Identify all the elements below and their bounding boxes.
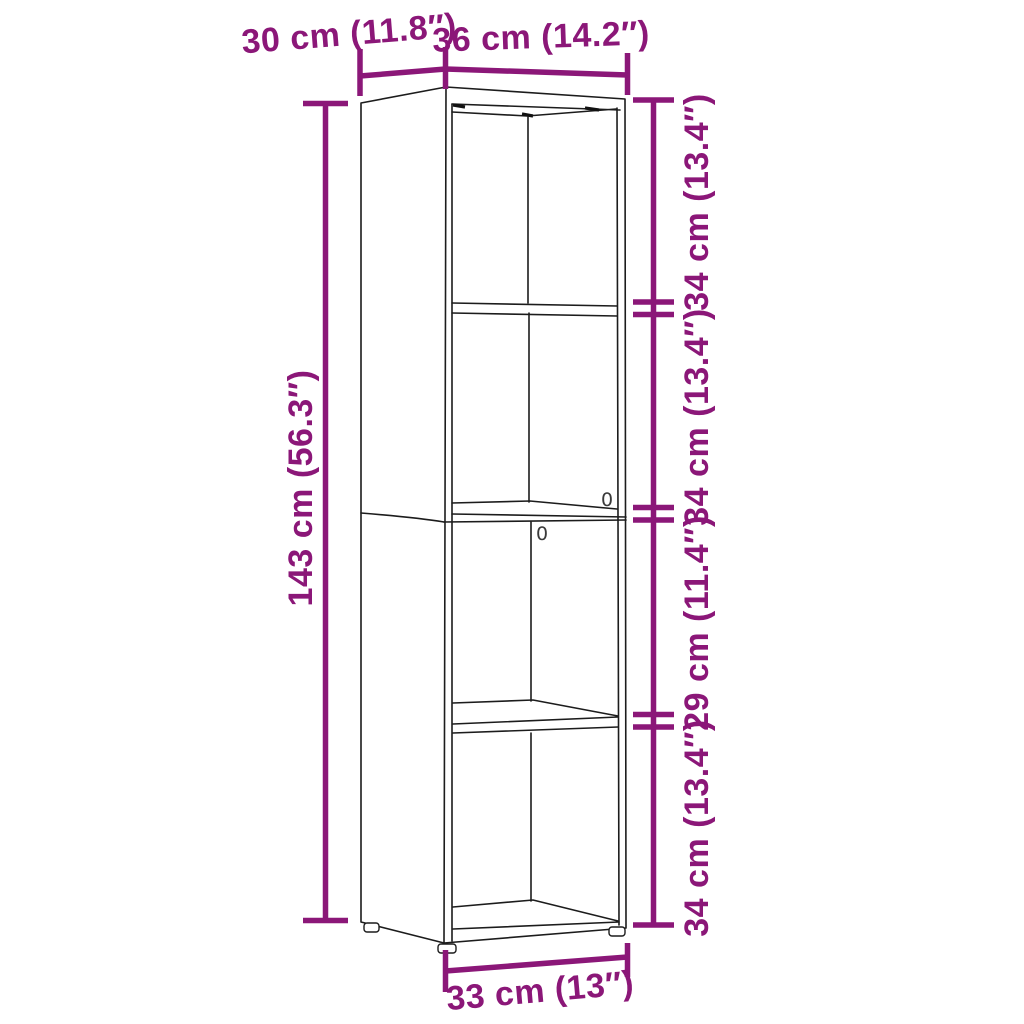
dim-top-line (360, 69, 628, 76)
bottom-panel (453, 900, 619, 929)
shelf-2 (453, 700, 618, 733)
dim-label-section-top: 34 cm (13.4″) (678, 93, 716, 310)
cabinet-drawing: 0 0 (361, 87, 626, 953)
dim-label-top-width: 36 cm (14.2″) (432, 14, 651, 60)
dim-label-section-lower-middle: 29 cm (11.4″) (678, 515, 716, 731)
cam-lock-dash-3 (522, 114, 533, 116)
dimension-diagram-canvas: 0 0 30 cm (11.8″) 36 cm (14.2″) 143 cm (… (0, 0, 1024, 1024)
dim-label-bottom-width: 33 cm (13″) (445, 964, 636, 1018)
furniture-dimension-diagram: 0 0 30 cm (11.8″) 36 cm (14.2″) 143 cm (… (0, 0, 1024, 1024)
foot-front-right (609, 927, 625, 936)
hole-mark-upper: 0 (601, 489, 613, 511)
dim-label-height: 143 cm (56.3″) (282, 370, 320, 607)
dim-label-section-upper-middle: 34 cm (13.4″) (678, 308, 716, 525)
cabinet-side-joint-seam (361, 513, 444, 522)
cabinet-side-panel (361, 87, 446, 943)
foot-back-left (364, 923, 379, 932)
module-joint-shelf (444, 501, 626, 522)
shelf-1 (452, 303, 617, 316)
cam-lock-dash-2 (585, 108, 599, 110)
cam-lock-dash-1 (453, 105, 465, 107)
dimension-bottom: 33 cm (13″) (445, 943, 636, 1018)
dimension-right-sections: 34 cm (13.4″) 34 cm (13.4″) 29 cm (11.4″… (633, 93, 716, 936)
dim-label-top-depth: 30 cm (11.8″) (240, 7, 458, 62)
dim-label-section-bottom: 34 cm (13.4″) (678, 719, 716, 936)
hole-mark-lower: 0 (536, 523, 548, 545)
dimension-top: 30 cm (11.8″) 36 cm (14.2″) (240, 7, 650, 96)
dimension-height-left: 143 cm (56.3″) (282, 104, 348, 921)
